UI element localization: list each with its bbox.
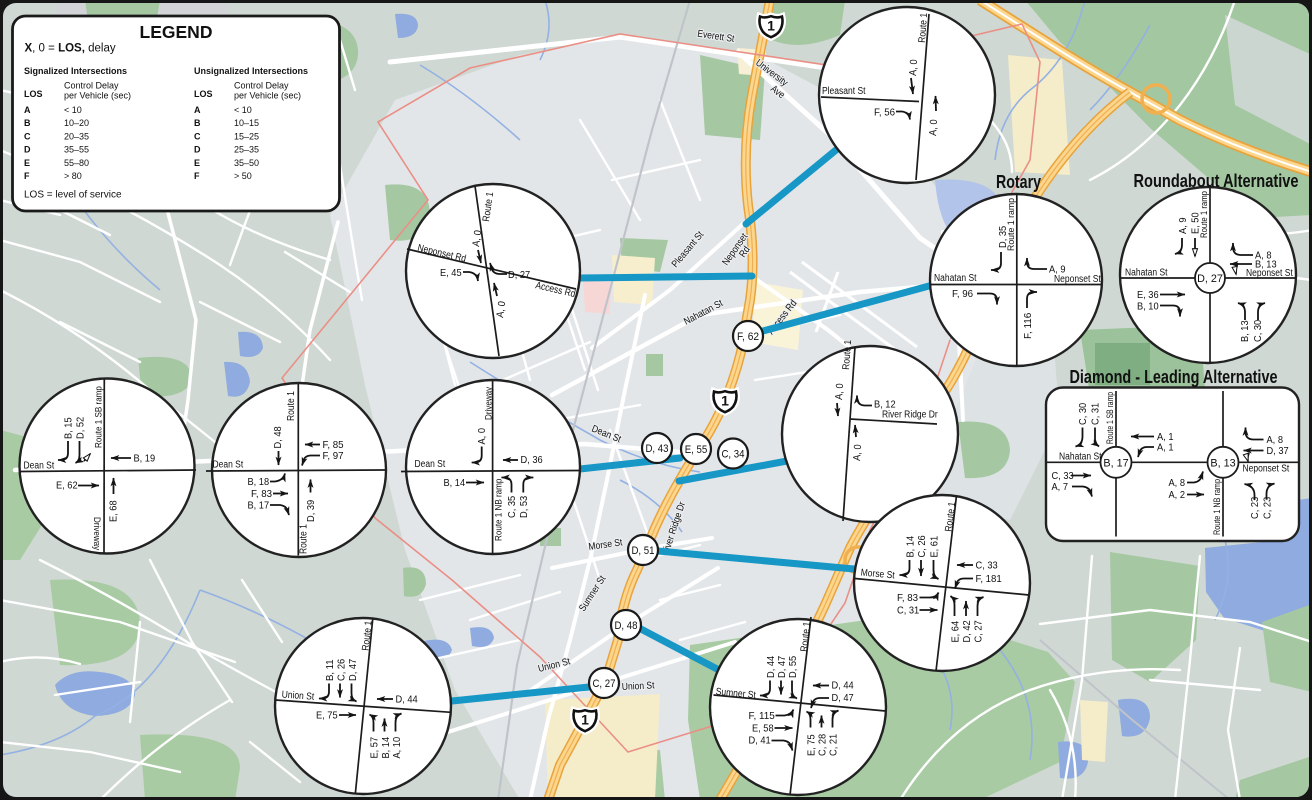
svg-text:Unsignalized Intersections: Unsignalized Intersections: [194, 66, 308, 76]
svg-text:20–35: 20–35: [64, 131, 89, 141]
svg-text:Nahatan St: Nahatan St: [1059, 452, 1102, 463]
svg-text:15–25: 15–25: [234, 131, 259, 141]
svg-text:D, 35: D, 35: [998, 226, 1009, 248]
svg-text:C, 26: C, 26: [917, 535, 928, 557]
svg-text:D, 44: D, 44: [766, 656, 777, 678]
svg-text:E, 58: E, 58: [752, 724, 774, 735]
svg-text:A, 1: A, 1: [1157, 443, 1174, 454]
svg-text:Route 1: Route 1: [917, 12, 930, 43]
svg-text:C, 27: C, 27: [592, 678, 615, 690]
svg-text:E, 57: E, 57: [370, 737, 381, 759]
svg-text:B: B: [24, 118, 31, 128]
svg-text:E, 62: E, 62: [56, 481, 78, 492]
svg-text:F: F: [24, 171, 30, 181]
svg-text:A, 9: A, 9: [1178, 217, 1189, 234]
svg-text:D: D: [24, 145, 31, 155]
svg-text:E: E: [194, 158, 200, 168]
svg-text:E, 68: E, 68: [109, 500, 120, 522]
svg-text:E, 36: E, 36: [1137, 290, 1159, 301]
svg-text:B, 10: B, 10: [1137, 302, 1159, 313]
svg-text:< 10: < 10: [234, 105, 252, 115]
svg-text:C, 33: C, 33: [1052, 471, 1074, 482]
svg-text:X, 0 = LOS, delay: X, 0 = LOS, delay: [25, 43, 116, 55]
svg-text:F, 96: F, 96: [952, 289, 973, 300]
svg-text:Route 1 NB ramp: Route 1 NB ramp: [1212, 479, 1223, 535]
svg-text:E: E: [24, 158, 30, 168]
svg-text:> 50: > 50: [234, 171, 252, 181]
svg-text:LOS = level of service: LOS = level of service: [24, 190, 122, 201]
svg-text:B, 13: B, 13: [1210, 457, 1235, 469]
svg-text:D, 42: D, 42: [962, 620, 973, 642]
svg-text:LOS: LOS: [194, 89, 213, 99]
svg-text:Route 1: Route 1: [286, 391, 297, 421]
svg-text:C, 31: C, 31: [1091, 403, 1102, 425]
svg-text:D, 27: D, 27: [508, 270, 530, 281]
svg-text:F: F: [194, 171, 200, 181]
svg-text:E, 45: E, 45: [440, 268, 462, 279]
svg-text:C, 28: C, 28: [818, 734, 829, 756]
svg-text:Neponset St: Neponset St: [1054, 274, 1101, 285]
svg-text:D, 43: D, 43: [645, 443, 668, 455]
svg-text:D, 52: D, 52: [76, 417, 87, 439]
svg-text:B, 14: B, 14: [906, 536, 917, 558]
svg-text:Nahatan St: Nahatan St: [934, 273, 977, 284]
svg-text:> 80: > 80: [64, 171, 82, 181]
svg-text:1: 1: [767, 18, 775, 34]
svg-text:D: D: [194, 145, 201, 155]
svg-text:A: A: [24, 105, 31, 115]
svg-text:Driveway: Driveway: [483, 387, 494, 420]
svg-text:10–15: 10–15: [234, 118, 259, 128]
svg-text:C, 30: C, 30: [1253, 320, 1264, 342]
svg-text:D, 55: D, 55: [788, 656, 799, 678]
svg-text:A, 8: A, 8: [1267, 435, 1284, 446]
svg-text:F, 56: F, 56: [874, 108, 895, 119]
svg-text:B, 12: B, 12: [874, 400, 896, 411]
svg-text:A, 0: A, 0: [495, 300, 508, 318]
svg-text:B, 14: B, 14: [381, 737, 392, 759]
svg-text:B, 17: B, 17: [248, 501, 270, 512]
svg-text:A, 2: A, 2: [1169, 490, 1186, 501]
svg-text:C, 35: C, 35: [507, 496, 518, 518]
svg-text:Route 1 SB ramp: Route 1 SB ramp: [1105, 392, 1116, 444]
svg-text:E, 75: E, 75: [316, 711, 338, 722]
svg-text:A, 8: A, 8: [1169, 478, 1186, 489]
svg-text:E, 64: E, 64: [951, 621, 962, 643]
svg-text:C: C: [194, 131, 201, 141]
svg-text:A, 0: A, 0: [834, 383, 846, 400]
svg-text:E, 55: E, 55: [685, 444, 708, 456]
svg-text:F, 97: F, 97: [323, 451, 344, 462]
svg-text:A, 0: A, 0: [477, 428, 488, 445]
svg-text:D, 37: D, 37: [1267, 446, 1289, 457]
svg-text:D, 47: D, 47: [832, 693, 854, 704]
svg-text:B, 11: B, 11: [325, 659, 336, 681]
svg-text:F, 83: F, 83: [897, 593, 918, 604]
svg-text:B, 19: B, 19: [134, 454, 156, 465]
svg-text:A, 7: A, 7: [1052, 482, 1069, 493]
svg-text:C, 26: C, 26: [337, 659, 348, 681]
svg-text:B, 18: B, 18: [248, 477, 270, 488]
svg-text:B, 15: B, 15: [64, 417, 75, 439]
svg-text:Control Delay: Control Delay: [64, 81, 119, 91]
svg-text:Signalized Intersections: Signalized Intersections: [24, 66, 127, 76]
svg-text:C, 33: C, 33: [976, 561, 998, 572]
svg-text:D, 51: D, 51: [631, 545, 654, 557]
svg-text:10–20: 10–20: [64, 118, 89, 128]
svg-text:Union St: Union St: [622, 680, 655, 693]
svg-text:Driveway: Driveway: [91, 517, 102, 550]
svg-text:B, 13: B, 13: [1240, 320, 1251, 342]
svg-text:25–35: 25–35: [234, 145, 259, 155]
svg-text:B, 17: B, 17: [1103, 457, 1128, 469]
svg-text:A, 0: A, 0: [852, 444, 864, 461]
svg-text:LEGEND: LEGEND: [140, 22, 213, 42]
svg-text:D, 36: D, 36: [521, 455, 543, 466]
svg-text:1: 1: [721, 393, 729, 409]
svg-text:LOS: LOS: [24, 89, 43, 99]
svg-text:F, 85: F, 85: [323, 440, 344, 451]
svg-text:D, 39: D, 39: [306, 500, 317, 522]
svg-text:1: 1: [581, 712, 589, 728]
svg-text:Rotary: Rotary: [996, 171, 1042, 192]
svg-text:C: C: [24, 131, 31, 141]
svg-text:Roundabout Alternative: Roundabout Alternative: [1134, 170, 1299, 191]
svg-text:Diamond - Leading Alternative: Diamond - Leading Alternative: [1070, 366, 1278, 387]
svg-text:F, 115: F, 115: [749, 711, 776, 722]
svg-text:C, 23: C, 23: [1263, 497, 1274, 519]
svg-text:35–50: 35–50: [234, 158, 259, 168]
svg-text:B, 14: B, 14: [444, 478, 466, 489]
svg-text:A, 1: A, 1: [1157, 432, 1174, 443]
svg-text:B, 13: B, 13: [1255, 260, 1277, 271]
svg-text:F, 181: F, 181: [976, 574, 1003, 585]
svg-text:E, 61: E, 61: [930, 536, 941, 558]
svg-text:< 10: < 10: [64, 105, 82, 115]
svg-text:B: B: [194, 118, 201, 128]
svg-text:35–55: 35–55: [64, 145, 89, 155]
svg-text:Dean St: Dean St: [415, 459, 446, 470]
svg-text:per Vehicle (sec): per Vehicle (sec): [234, 91, 301, 101]
svg-text:A, 0: A, 0: [928, 119, 940, 136]
svg-text:C, 31: C, 31: [897, 606, 919, 617]
svg-text:C, 21: C, 21: [829, 734, 840, 756]
svg-text:D, 47: D, 47: [777, 656, 788, 678]
svg-text:Dean St: Dean St: [24, 461, 55, 472]
svg-text:A, 10: A, 10: [392, 737, 403, 759]
svg-text:Control Delay: Control Delay: [234, 81, 289, 91]
svg-text:D, 48: D, 48: [273, 426, 284, 448]
svg-text:F, 62: F, 62: [737, 331, 759, 343]
svg-text:Pleasant St: Pleasant St: [822, 86, 866, 97]
svg-text:C, 34: C, 34: [721, 449, 744, 461]
svg-text:D, 44: D, 44: [832, 681, 854, 692]
svg-text:D, 48: D, 48: [614, 620, 637, 632]
svg-text:A, 9: A, 9: [1049, 265, 1066, 276]
svg-text:Union St: Union St: [281, 690, 314, 703]
svg-text:C, 30: C, 30: [1078, 403, 1089, 425]
svg-text:C, 27: C, 27: [974, 620, 985, 642]
svg-text:per Vehicle (sec): per Vehicle (sec): [64, 91, 131, 101]
svg-text:E, 75: E, 75: [807, 734, 818, 756]
svg-text:D, 53: D, 53: [519, 496, 530, 518]
svg-text:Nahatan St: Nahatan St: [1125, 268, 1168, 279]
svg-text:D, 41: D, 41: [749, 736, 771, 747]
svg-text:A, 0: A, 0: [908, 59, 920, 76]
svg-text:Dean St: Dean St: [213, 460, 244, 471]
svg-text:Route 1: Route 1: [841, 339, 854, 370]
svg-text:Route 1 NB ramp: Route 1 NB ramp: [494, 479, 505, 541]
svg-text:Route 1 SB ramp: Route 1 SB ramp: [94, 386, 105, 448]
svg-text:F, 83: F, 83: [251, 489, 272, 500]
svg-text:Route 1: Route 1: [299, 524, 310, 554]
svg-text:D, 47: D, 47: [348, 659, 359, 681]
svg-text:D, 27: D, 27: [1197, 273, 1223, 285]
svg-text:F, 116: F, 116: [1023, 312, 1034, 339]
svg-text:55–80: 55–80: [64, 158, 89, 168]
svg-text:River Ridge Dr: River Ridge Dr: [882, 410, 938, 421]
svg-text:A, 0: A, 0: [471, 229, 484, 247]
svg-text:C, 23: C, 23: [1250, 497, 1261, 519]
svg-text:A: A: [194, 105, 201, 115]
svg-text:D, 44: D, 44: [396, 695, 418, 706]
svg-text:E, 50: E, 50: [1191, 212, 1202, 234]
svg-text:Neponset St: Neponset St: [1243, 464, 1290, 475]
